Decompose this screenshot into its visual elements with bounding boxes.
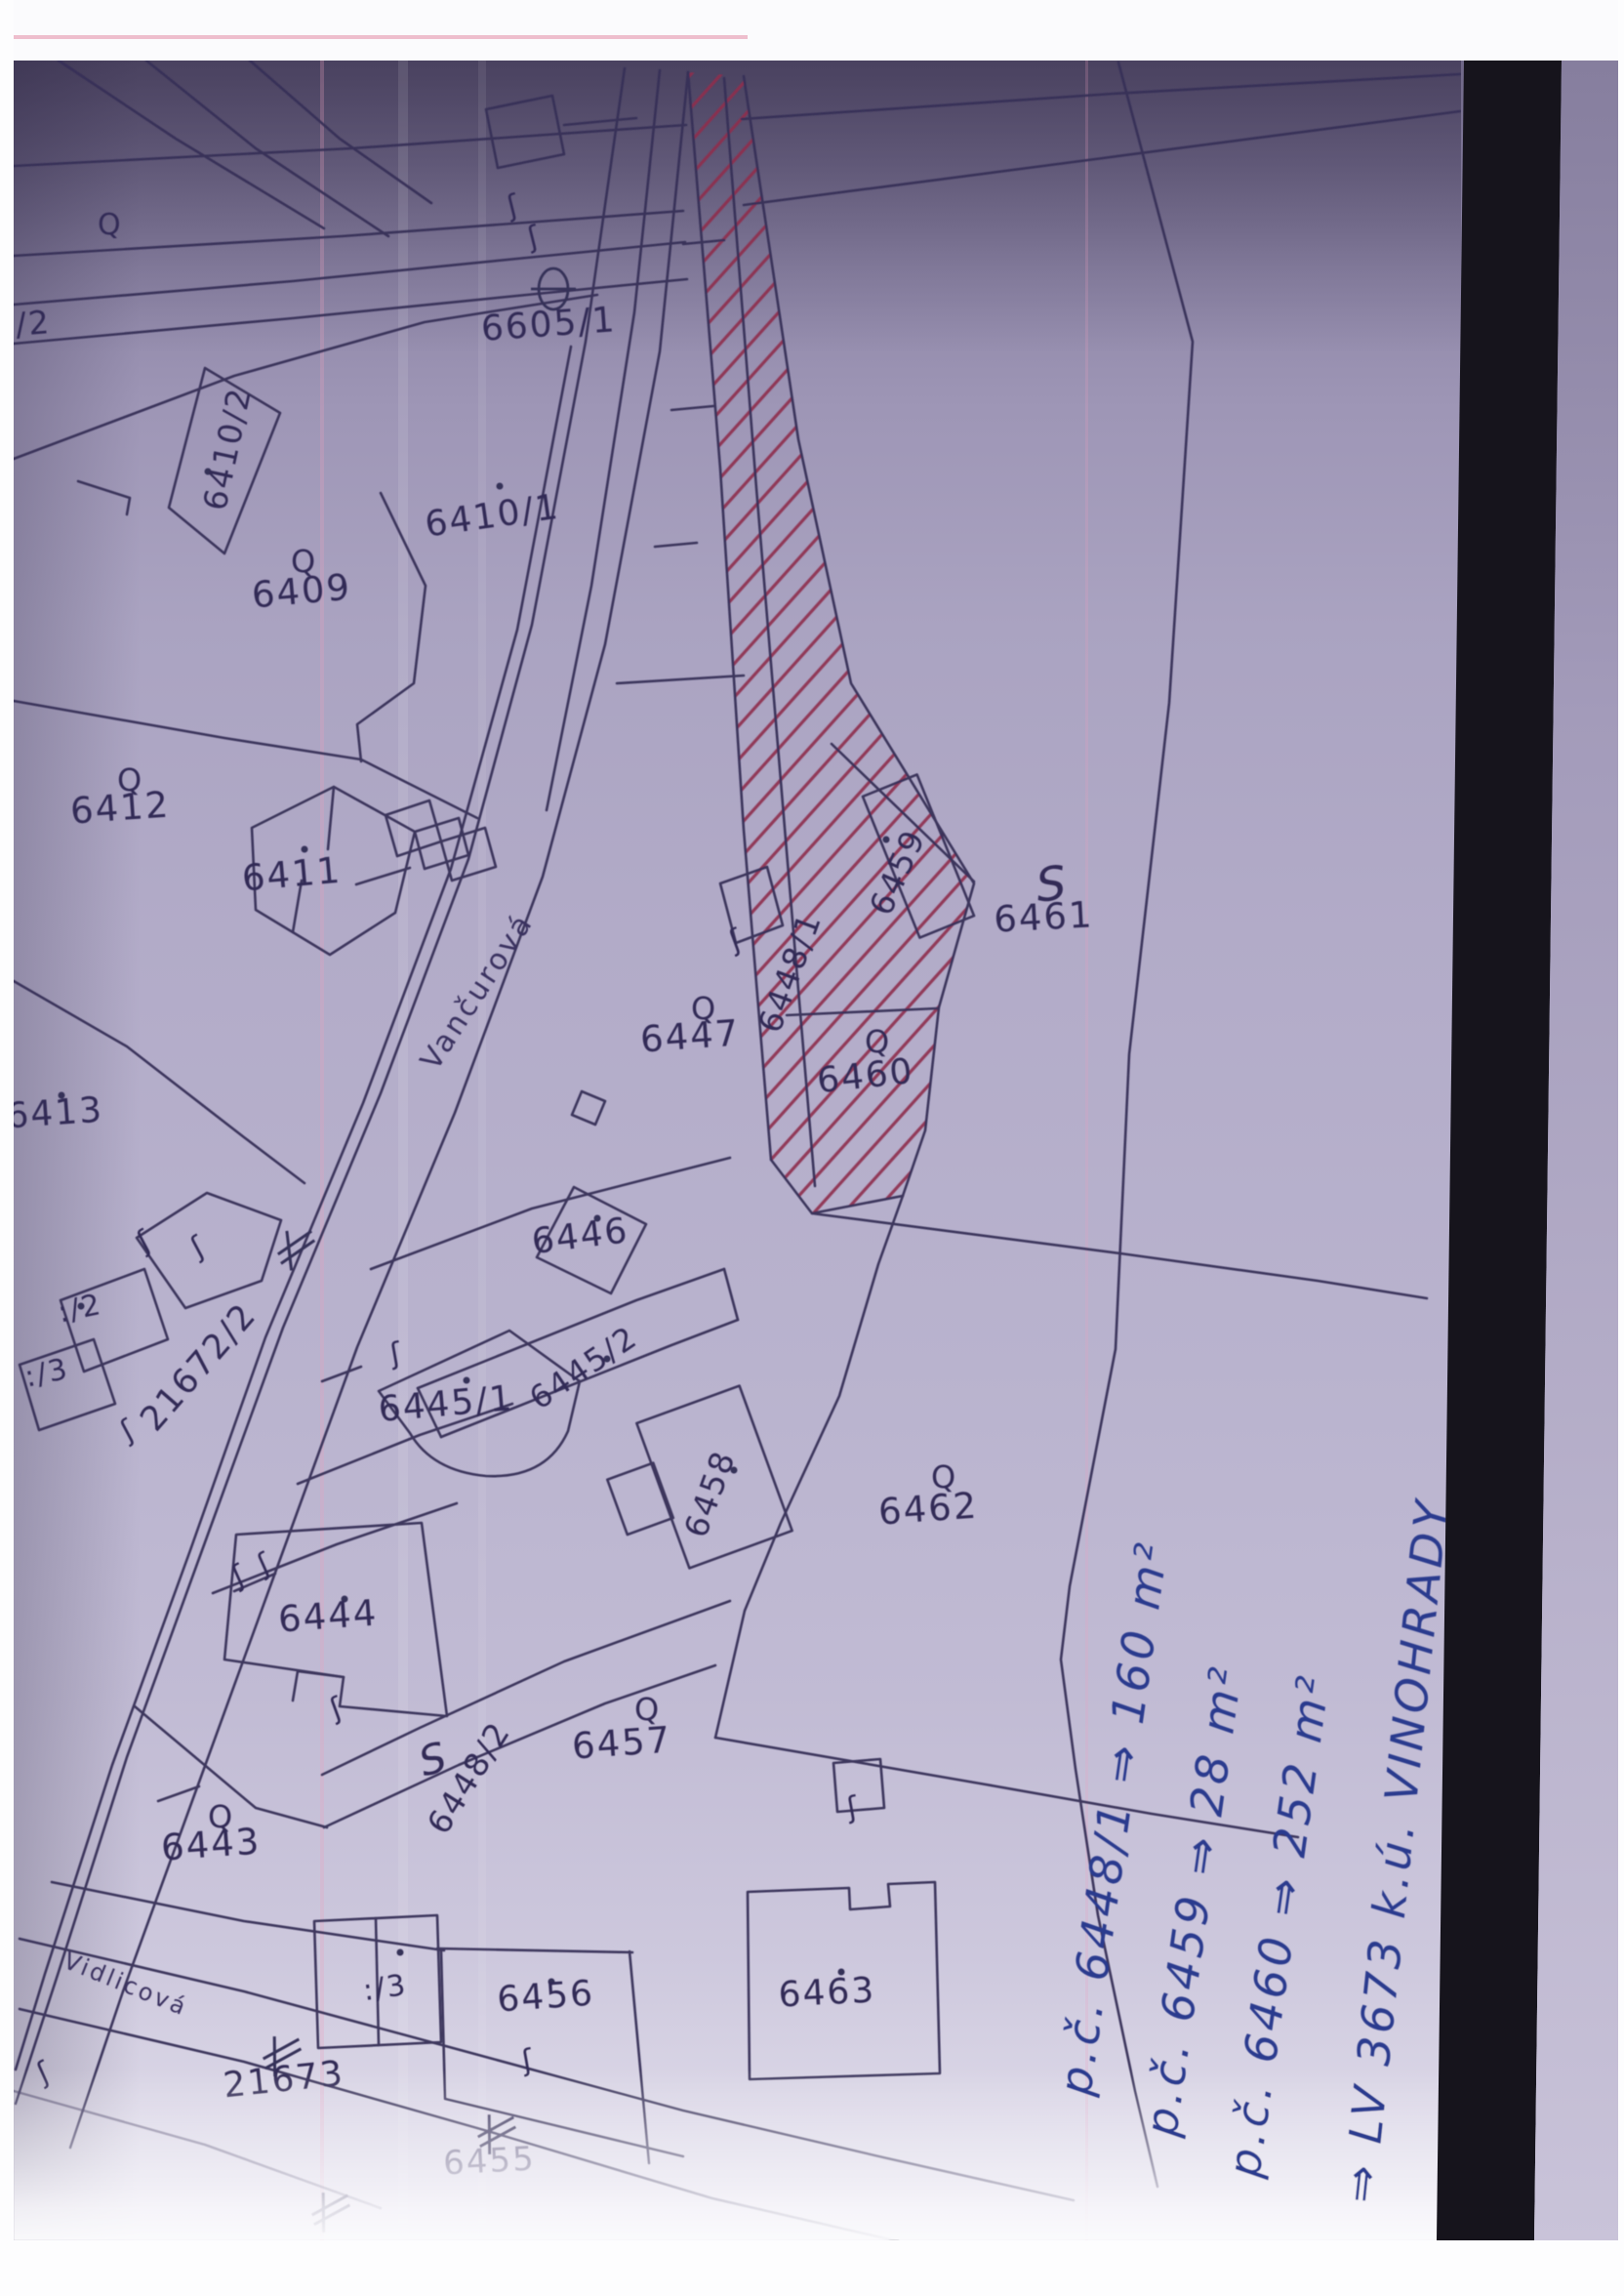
scan-streak-pink-1 xyxy=(320,61,324,2240)
scan-streak-top-pink-line xyxy=(14,35,748,39)
tree-mark-icon: Q xyxy=(98,208,121,242)
map-scan-canvas: Q Q Q Q Q Q Q Q S S ʃ ʃ ʃ ʃ ʃ ʃ ʃ ʃ ʃ ʃ … xyxy=(0,0,1624,2296)
scan-streak-light-2 xyxy=(478,61,486,2240)
parcel-label-6444: 6444 xyxy=(277,1592,380,1641)
parcel-label-6411: 6411 xyxy=(240,849,344,900)
paper-margin-top xyxy=(0,0,1624,35)
scan-streak-light-1 xyxy=(398,61,408,2240)
parcel-label-6461: 6461 xyxy=(993,893,1094,940)
paper-margin-top2 xyxy=(0,39,1624,61)
parcel-label-6443: 6443 xyxy=(160,1821,263,1869)
parcel-label-6457: 6457 xyxy=(571,1719,673,1768)
parcel-label-6456: 6456 xyxy=(496,1974,595,2021)
parcel-label-6412: 6412 xyxy=(69,784,172,833)
parcel-label-3-bottom: :/3 xyxy=(361,1968,410,2008)
paper-margin-left xyxy=(0,0,14,2296)
parcel-label-6463: 6463 xyxy=(778,1970,877,2015)
parcel-label-6413: 6413 xyxy=(5,1090,104,1137)
scanned-cadastral-map-page: Q Q Q Q Q Q Q Q S S ʃ ʃ ʃ ʃ ʃ ʃ ʃ ʃ ʃ ʃ … xyxy=(0,0,1624,2296)
parcel-label-6409: 6409 xyxy=(250,566,353,617)
paper-margin-right xyxy=(1618,0,1624,2296)
parcel-label-6447: 6447 xyxy=(639,1012,742,1061)
parcel-label-6462: 6462 xyxy=(877,1485,980,1534)
paper-margin-bottom xyxy=(0,2240,1624,2296)
